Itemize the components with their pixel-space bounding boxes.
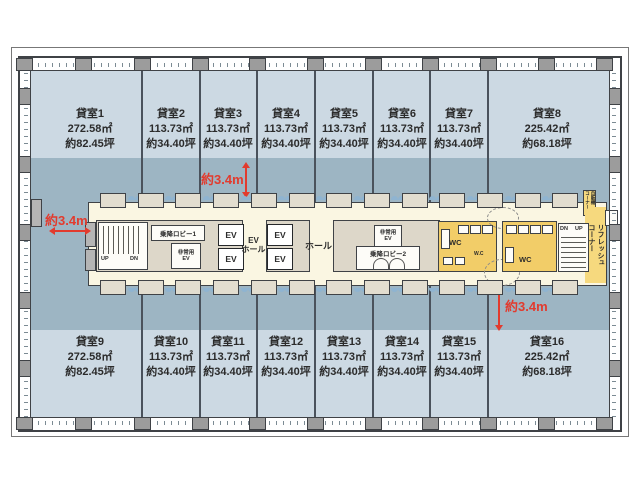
facade-column: [365, 417, 382, 430]
building-inner-wall: [30, 70, 610, 418]
facade-column: [249, 58, 266, 71]
corridor-edge-unit: [439, 193, 465, 208]
door-arc: [278, 196, 285, 200]
facade-column: [75, 417, 92, 430]
door-arc: [165, 196, 172, 200]
corridor-edge-unit: [552, 280, 578, 295]
facade-column: [249, 417, 266, 430]
corridor-edge-unit: [402, 280, 428, 295]
facade-column: [19, 360, 31, 377]
corridor-edge-unit: [477, 193, 503, 208]
facade-column: [609, 292, 621, 309]
facade-column: [609, 156, 621, 173]
corridor-edge-unit: [402, 193, 428, 208]
corridor-edge-unit: [439, 280, 465, 295]
facade-column: [19, 88, 31, 105]
corridor-edge-unit: [364, 193, 390, 208]
facade-column: [192, 58, 209, 71]
facade-column: [307, 58, 324, 71]
facade-column: [609, 88, 621, 105]
facade-column: [609, 224, 621, 241]
facade-column: [19, 224, 31, 241]
facade-column: [75, 58, 92, 71]
facade-column: [596, 417, 613, 430]
corridor-edge-unit: [175, 193, 201, 208]
facade-column: [609, 360, 621, 377]
corridor-edge-unit: [515, 193, 541, 208]
corridor-edge-unit: [100, 193, 126, 208]
door-arc: [505, 288, 512, 292]
corridor-edge-unit: [100, 280, 126, 295]
facade-column: [16, 417, 33, 430]
facade-column: [365, 58, 382, 71]
corridor-edge-unit: [251, 280, 277, 295]
corridor-edge-unit: [138, 280, 164, 295]
corridor-edge-unit: [326, 193, 352, 208]
corridor-edge-unit: [213, 193, 239, 208]
corridor-edge-unit: [289, 280, 315, 295]
corridor-edge-unit: [175, 280, 201, 295]
corridor-edge-unit: [213, 280, 239, 295]
facade-column: [134, 58, 151, 71]
door-arc: [505, 196, 512, 200]
facade-column: [19, 156, 31, 173]
door-arc: [316, 196, 323, 200]
door-arc: [128, 288, 135, 292]
corridor-edge-unit: [289, 193, 315, 208]
corridor-edge-unit: [138, 193, 164, 208]
door-arc: [467, 196, 474, 200]
corridor-edge-unit: [364, 280, 390, 295]
corridor-edge-unit: [552, 193, 578, 208]
door-arc: [128, 196, 135, 200]
door-arc: [429, 196, 436, 200]
door-arc: [391, 196, 398, 200]
facade-column: [307, 417, 324, 430]
door-arc: [241, 196, 248, 200]
corridor-edge-unit: [515, 280, 541, 295]
facade-column: [480, 58, 497, 71]
facade-column: [192, 417, 209, 430]
facade-column: [480, 417, 497, 430]
facade-column: [538, 58, 555, 71]
facade-column: [19, 292, 31, 309]
corridor-edge-unit: [326, 280, 352, 295]
facade-column: [596, 58, 613, 71]
door-arc: [542, 196, 549, 200]
facade-column: [538, 417, 555, 430]
door-arc: [203, 196, 210, 200]
facade-column: [422, 58, 439, 71]
corridor-edge-unit: [251, 193, 277, 208]
facade-column: [134, 417, 151, 430]
facade-column: [16, 58, 33, 71]
floor-plan: 貸室1 272.58㎡ 約82.45坪 貸室2 113.73㎡ 約34.40坪 …: [0, 0, 640, 480]
corridor-edge-unit: [477, 280, 503, 295]
door-arc: [354, 196, 361, 200]
facade-column: [422, 417, 439, 430]
